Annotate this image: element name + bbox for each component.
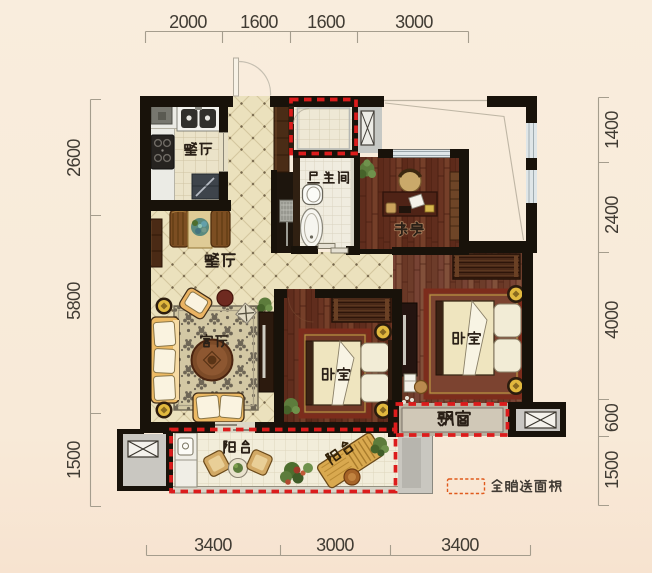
svg-text:3000: 3000 [395, 12, 433, 32]
svg-text:3400: 3400 [441, 535, 479, 555]
svg-text:3400: 3400 [194, 535, 232, 555]
svg-text:1400: 1400 [602, 111, 622, 149]
svg-text:1500: 1500 [602, 451, 622, 489]
svg-text:2400: 2400 [602, 196, 622, 234]
svg-text:1600: 1600 [240, 12, 278, 32]
svg-text:2600: 2600 [64, 139, 84, 177]
svg-text:2000: 2000 [169, 12, 207, 32]
svg-text:1600: 1600 [307, 12, 345, 32]
svg-text:600: 600 [602, 403, 622, 432]
svg-text:5800: 5800 [64, 282, 84, 320]
svg-text:4000: 4000 [602, 301, 622, 339]
svg-text:3000: 3000 [316, 535, 354, 555]
svg-text:1500: 1500 [64, 441, 84, 479]
